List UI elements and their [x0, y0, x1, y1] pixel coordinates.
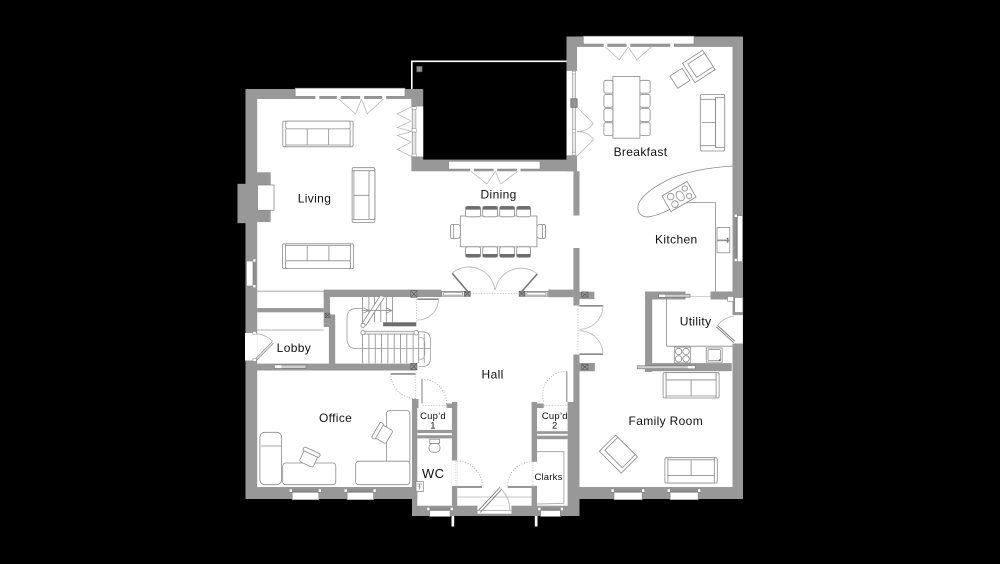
svg-text:Office: Office	[319, 411, 352, 425]
svg-text:Living: Living	[298, 192, 331, 206]
svg-text:Family Room: Family Room	[629, 414, 704, 428]
svg-text:Utility: Utility	[680, 315, 712, 329]
svg-text:Hall: Hall	[482, 367, 504, 381]
svg-text:2: 2	[552, 421, 557, 432]
svg-text:Dining: Dining	[481, 187, 517, 201]
svg-text:1: 1	[430, 421, 435, 432]
svg-text:Kitchen: Kitchen	[655, 233, 697, 247]
svg-text:Clarks: Clarks	[534, 472, 562, 483]
svg-text:Lobby: Lobby	[277, 341, 311, 355]
svg-text:WC: WC	[422, 466, 444, 481]
svg-text:Breakfast: Breakfast	[614, 145, 668, 159]
